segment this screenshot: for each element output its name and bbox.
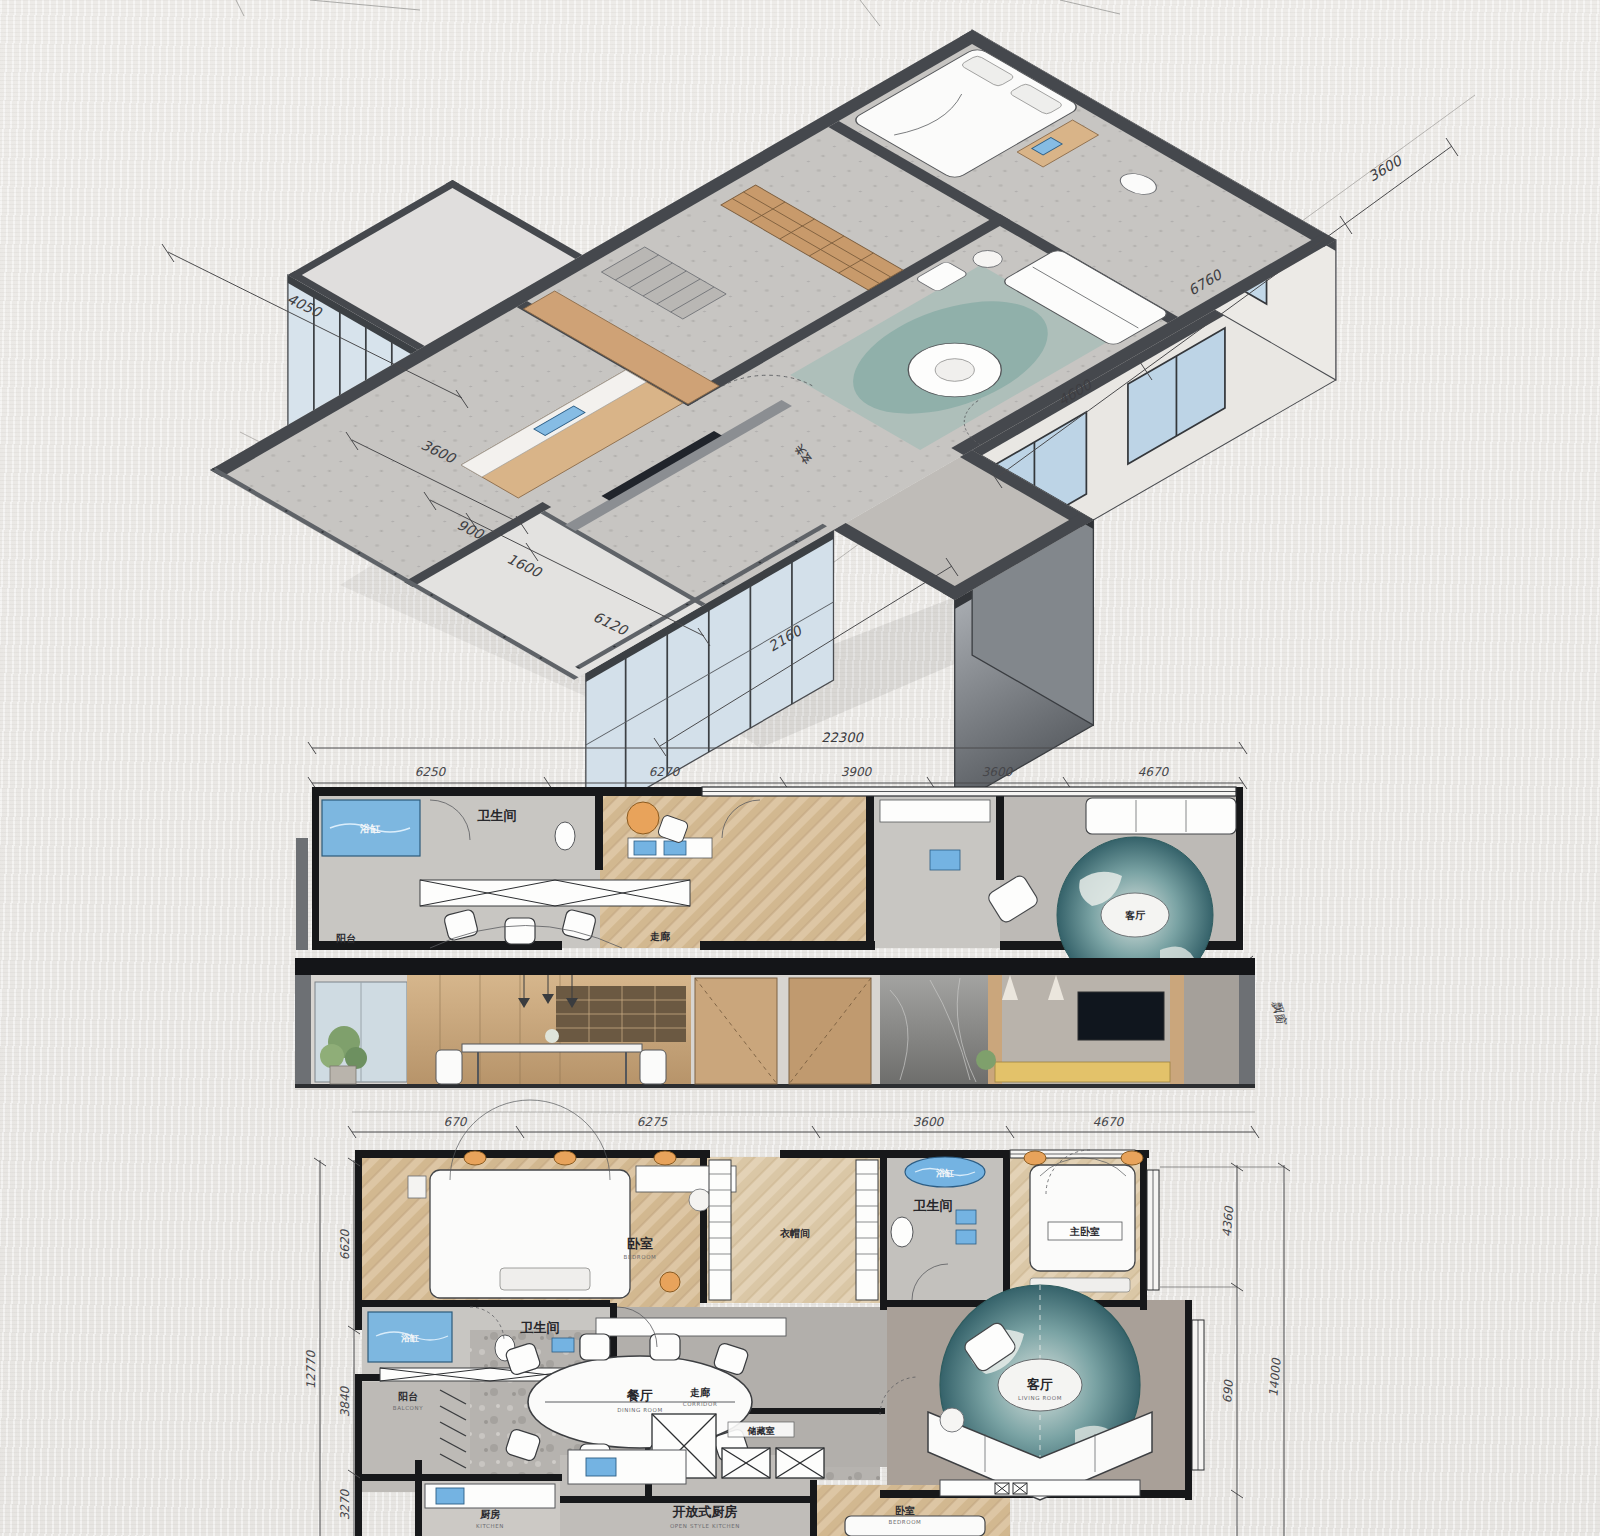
room-label-balcony: 阳台 [336,933,356,944]
room-label-living-en: LIVING ROOM [1018,1395,1062,1401]
plan-dim: 670 [444,1115,468,1129]
plan-dim: 4670 [1093,1115,1125,1129]
isometric-view: 玄关 4050 3600 900 1600 6120 2160 4600 676… [80,0,1475,823]
note-bay-window: 飘窗 [1269,999,1289,1028]
room-label-bathroom: 卫生间 [913,1198,953,1213]
room-label-master-box: 主卧室 [1048,1222,1122,1240]
room-label-open-kitchen-en: OPEN STYLE KITCHEN [670,1523,740,1529]
strip-dim: 6250 [415,765,447,779]
plan-dim: 6275 [637,1115,669,1129]
section-elevation [295,958,1255,1090]
room-label-bedroom2: 卧室 [895,1505,915,1516]
floor-plan-view: 670 6275 3600 4670 [304,1100,1290,1536]
room-label-dining-en: DINING ROOM [617,1407,663,1413]
strip-dim: 3900 [841,765,873,779]
plan-dim-left-total: 12770 [304,1350,318,1390]
rendering-sheet: 玄关 4050 3600 900 1600 6120 2160 4600 676… [0,0,1600,1536]
strip-dim: 6270 [649,765,681,779]
room-label-bedroom2-en: BEDROOM [889,1519,922,1525]
plan-dim-right: 690 [1220,1378,1236,1403]
plan-dim: 3600 [913,1115,945,1129]
room-label-bathtub2: 浴缸 [400,1333,419,1343]
strip-dim: 3600 [982,765,1014,779]
room-label-corridor-en: CORRIDOR [683,1401,718,1407]
room-label-kitchen-en: KITCHEN [476,1523,504,1529]
iso-dim-right: 3600 [1365,152,1405,185]
room-label-living: 客厅 [1124,910,1146,921]
plan-strip-view: 22300 6250 6270 3900 3600 4670 [295,730,1289,1090]
strip-dim: 4670 [1138,765,1170,779]
room-label-bedroom: 卧室 [627,1236,653,1251]
plan-dim-left: 3840 [338,1385,352,1417]
room-label-corridor: 走廊 [689,1387,710,1398]
room-label-storage: 储藏室 [747,1426,775,1436]
room-label-bathtub: 浴缸 [359,823,381,834]
construction-lines [236,0,1120,26]
plan-dim-right: 4360 [1220,1204,1237,1237]
room-label-bedroom-en: BEDROOM [624,1254,657,1260]
room-label-balcony: 阳台 [398,1391,418,1402]
room-label-balcony-en: BALCONY [393,1405,423,1411]
plan-dim-right-total: 14000 [1266,1357,1283,1398]
watercolor-paper-canvas: { "artwork": { "kind": "hand-drawn inter… [0,0,1600,1536]
room-label-kitchen: 厨房 [479,1509,500,1520]
room-label-master: 主卧室 [1069,1226,1100,1237]
room-label-living: 客厅 [1026,1377,1053,1392]
plan-dim-left: 3270 [338,1488,352,1520]
plan-dim-left: 6620 [338,1228,352,1260]
room-label-dining: 餐厅 [626,1388,653,1403]
strip-dim-total: 22300 [821,730,864,745]
room-label-storage-box: 储藏室 [728,1422,794,1437]
room-label-bathroom: 卫生间 [477,808,517,823]
room-label-cloak: 衣帽间 [779,1228,810,1239]
room-label-bath2: 卫生间 [520,1320,560,1335]
room-label-bathtub: 浴缸 [935,1168,954,1178]
room-label-corridor: 走廊 [649,931,670,942]
room-label-open-kitchen: 开放式厨房 [672,1504,738,1519]
